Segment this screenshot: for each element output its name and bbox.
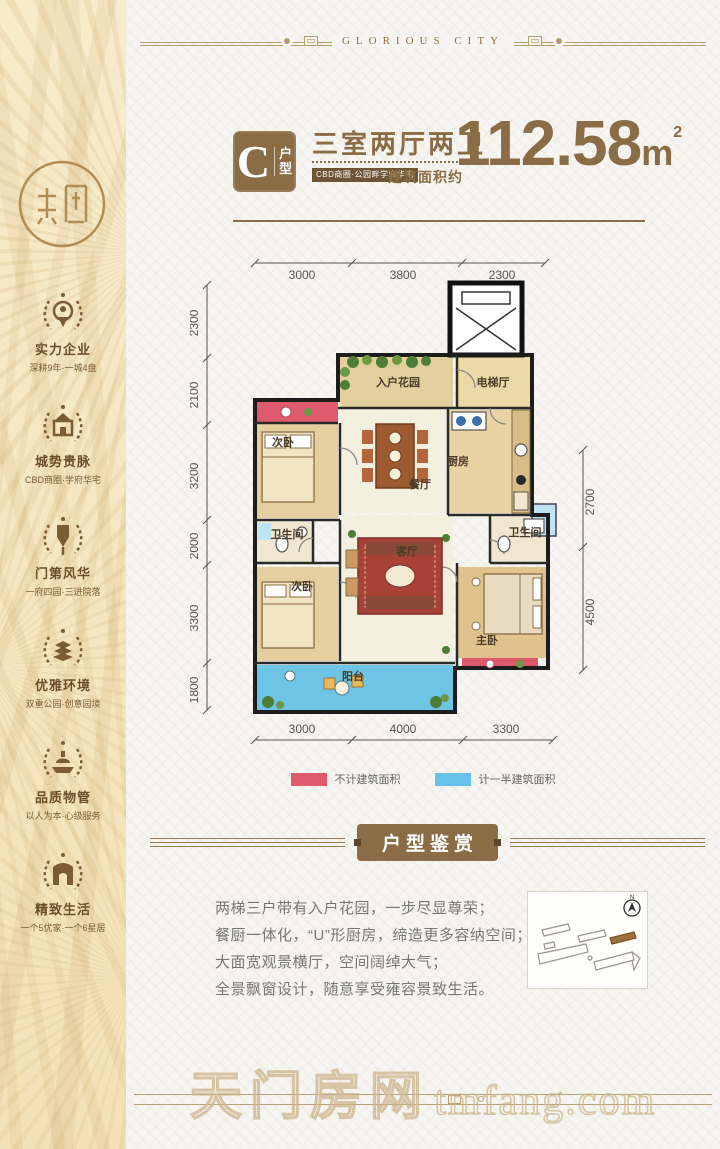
badge-lifestyle: 精致生活 一个5优家·一个6星居	[0, 851, 126, 934]
elevator-shaft	[450, 283, 522, 355]
site-plan-drawing: N	[528, 892, 647, 988]
section-lines-left	[150, 838, 345, 847]
badge-subtitle: 一个5优家·一个6星居	[20, 921, 105, 934]
desc-line: 两梯三户带有入户花园，一步尽显尊荣；	[215, 895, 545, 922]
dim-left-6: 1800	[190, 676, 201, 703]
label-kitchen: 厨房	[447, 454, 469, 468]
desc-line: 全景飘窗设计，随意享受雍容景致生活。	[215, 976, 545, 1003]
unit-type-badge: C 户 型	[233, 131, 296, 192]
floorplan-drawing: 入户花园 电梯厅 厨房 次卧 餐厅 卫生间 客厅 次卧 卫生间 主卧 阳台 30…	[190, 252, 620, 762]
badge-location: 城势贵脉 CBD商圈·学府华宅	[0, 403, 126, 486]
north-arrow-icon: N	[624, 895, 640, 916]
laurel-books-icon	[39, 627, 87, 673]
section-lines-right	[510, 838, 705, 847]
banner-ornament-icon	[304, 36, 318, 46]
section-title: 户型鉴赏	[357, 824, 498, 861]
badge-title: 优雅环境	[35, 675, 91, 694]
label-elevator-hall: 电梯厅	[477, 375, 510, 389]
label-bath1: 卫生间	[271, 527, 304, 541]
title-underline	[233, 220, 645, 222]
label-garden: 入户花园	[376, 375, 420, 389]
label-master: 主卧	[476, 633, 498, 647]
legend-red-label: 不计建筑面积	[335, 771, 401, 787]
section-header: 户型鉴赏	[150, 824, 705, 861]
unit-description: 两梯三户带有入户花园，一步尽显尊荣； 餐厨一体化，“U”形厨房，缔造更多容纳空间…	[215, 895, 545, 1003]
benefit-badges: 实力企业 深耕9年·一城4盘 城势贵脉 CBD商圈·学府华宅	[0, 291, 126, 934]
badge-subtitle: CBD商圈·学府华宅	[25, 473, 101, 486]
laurel-gate-icon	[39, 403, 87, 449]
badge-title: 实力企业	[35, 339, 91, 358]
label-bedroom3: 次卧	[291, 579, 313, 593]
area-exponent: 2	[673, 124, 682, 142]
laurel-pen-icon	[39, 515, 87, 561]
area-value: 112.58 m 2	[455, 106, 682, 180]
legend-red-swatch	[291, 773, 327, 786]
banner-ornament-icon	[528, 36, 542, 46]
badge-subtitle: 深耕9年·一城4盘	[29, 361, 96, 374]
area-legend: 不计建筑面积 计一半建筑面积	[126, 771, 720, 787]
dim-left-1: 2300	[190, 309, 201, 336]
desc-line: 餐厨一体化，“U”形厨房，缔造更多容纳空间；	[215, 922, 545, 949]
banner-text: GLORIOUS CITY	[332, 35, 514, 47]
laurel-pin-icon	[39, 291, 87, 337]
label-balcony: 阳台	[342, 669, 364, 683]
dim-top-2: 3800	[390, 268, 417, 282]
dim-bottom-2: 4000	[390, 722, 417, 736]
dim-right-2: 4500	[583, 598, 597, 625]
badge-title: 品质物管	[35, 787, 91, 806]
dim-left-5: 3300	[190, 604, 201, 631]
badge-property-mgmt: 品质物管 以人为本·心级服务	[0, 739, 126, 822]
unit-label: 户 型	[274, 147, 292, 177]
top-banner: GLORIOUS CITY	[126, 35, 720, 47]
dim-top-3: 2300	[489, 268, 516, 282]
badge-subtitle: 一府四园·三进院落	[26, 585, 101, 598]
label-dining: 餐厅	[408, 477, 431, 491]
site-plan-map: N	[527, 891, 648, 989]
badge-environment: 优雅环境 双重公园·创意园境	[0, 627, 126, 710]
watermark: 天门房网 tmfang.com	[126, 1054, 720, 1129]
label-bath2: 卫生间	[509, 525, 542, 539]
legend-blue: 计一半建筑面积	[435, 771, 556, 787]
dim-right-1: 2700	[583, 488, 597, 515]
bay-window-red-top	[257, 402, 338, 423]
banner-dot-icon	[556, 38, 562, 44]
legend-blue-swatch	[435, 773, 471, 786]
north-label: N	[630, 895, 634, 901]
unit-label-char1: 户	[279, 147, 292, 162]
desc-line: 大面宽观景横厅，空间阔绰大气；	[215, 949, 545, 976]
dim-bottom-3: 3300	[493, 722, 520, 736]
layout-divider	[312, 161, 462, 163]
brand-seal-logo	[16, 158, 108, 250]
badge-prestige: 门第风华 一府四园·三进院落	[0, 515, 126, 598]
sidebar: 实力企业 深耕9年·一城4盘 城势贵脉 CBD商圈·学府华宅	[0, 0, 126, 1149]
badge-subtitle: 以人为本·心级服务	[26, 809, 101, 822]
area-number: 112.58	[455, 106, 641, 180]
dim-left-2: 2100	[190, 381, 201, 408]
banner-dot-icon	[284, 38, 290, 44]
dim-left-3: 3200	[190, 462, 201, 489]
badge-strength: 实力企业 深耕9年·一城4盘	[0, 291, 126, 374]
legend-red: 不计建筑面积	[291, 771, 401, 787]
label-living: 客厅	[395, 544, 418, 558]
watermark-cn: 天门房网	[190, 1068, 430, 1126]
unit-letter: C	[237, 139, 270, 185]
laurel-clubhouse-icon	[39, 739, 87, 785]
laurel-pavilion-icon	[39, 851, 87, 897]
area-prefix: 建筑面积约	[388, 167, 463, 187]
main-panel: GLORIOUS CITY C 户 型 三室两厅两卫 CBD商圈·公园畔学府华宅…	[126, 0, 720, 1149]
badge-title: 精致生活	[35, 899, 91, 918]
area-unit: m	[641, 132, 673, 174]
dim-left-4: 2000	[190, 532, 201, 559]
badge-title: 门第风华	[35, 563, 91, 582]
watermark-en: tmfang.com	[434, 1078, 656, 1124]
label-bedroom2: 次卧	[272, 435, 294, 449]
legend-blue-label: 计一半建筑面积	[479, 771, 556, 787]
dim-bottom-1: 3000	[289, 722, 316, 736]
badge-subtitle: 双重公园·创意园境	[26, 697, 101, 710]
dim-top-1: 3000	[289, 268, 316, 282]
unit-label-char2: 型	[279, 162, 292, 177]
bath1-window-blue	[258, 523, 271, 540]
badge-title: 城势贵脉	[35, 451, 91, 470]
highlighted-building	[610, 932, 636, 944]
